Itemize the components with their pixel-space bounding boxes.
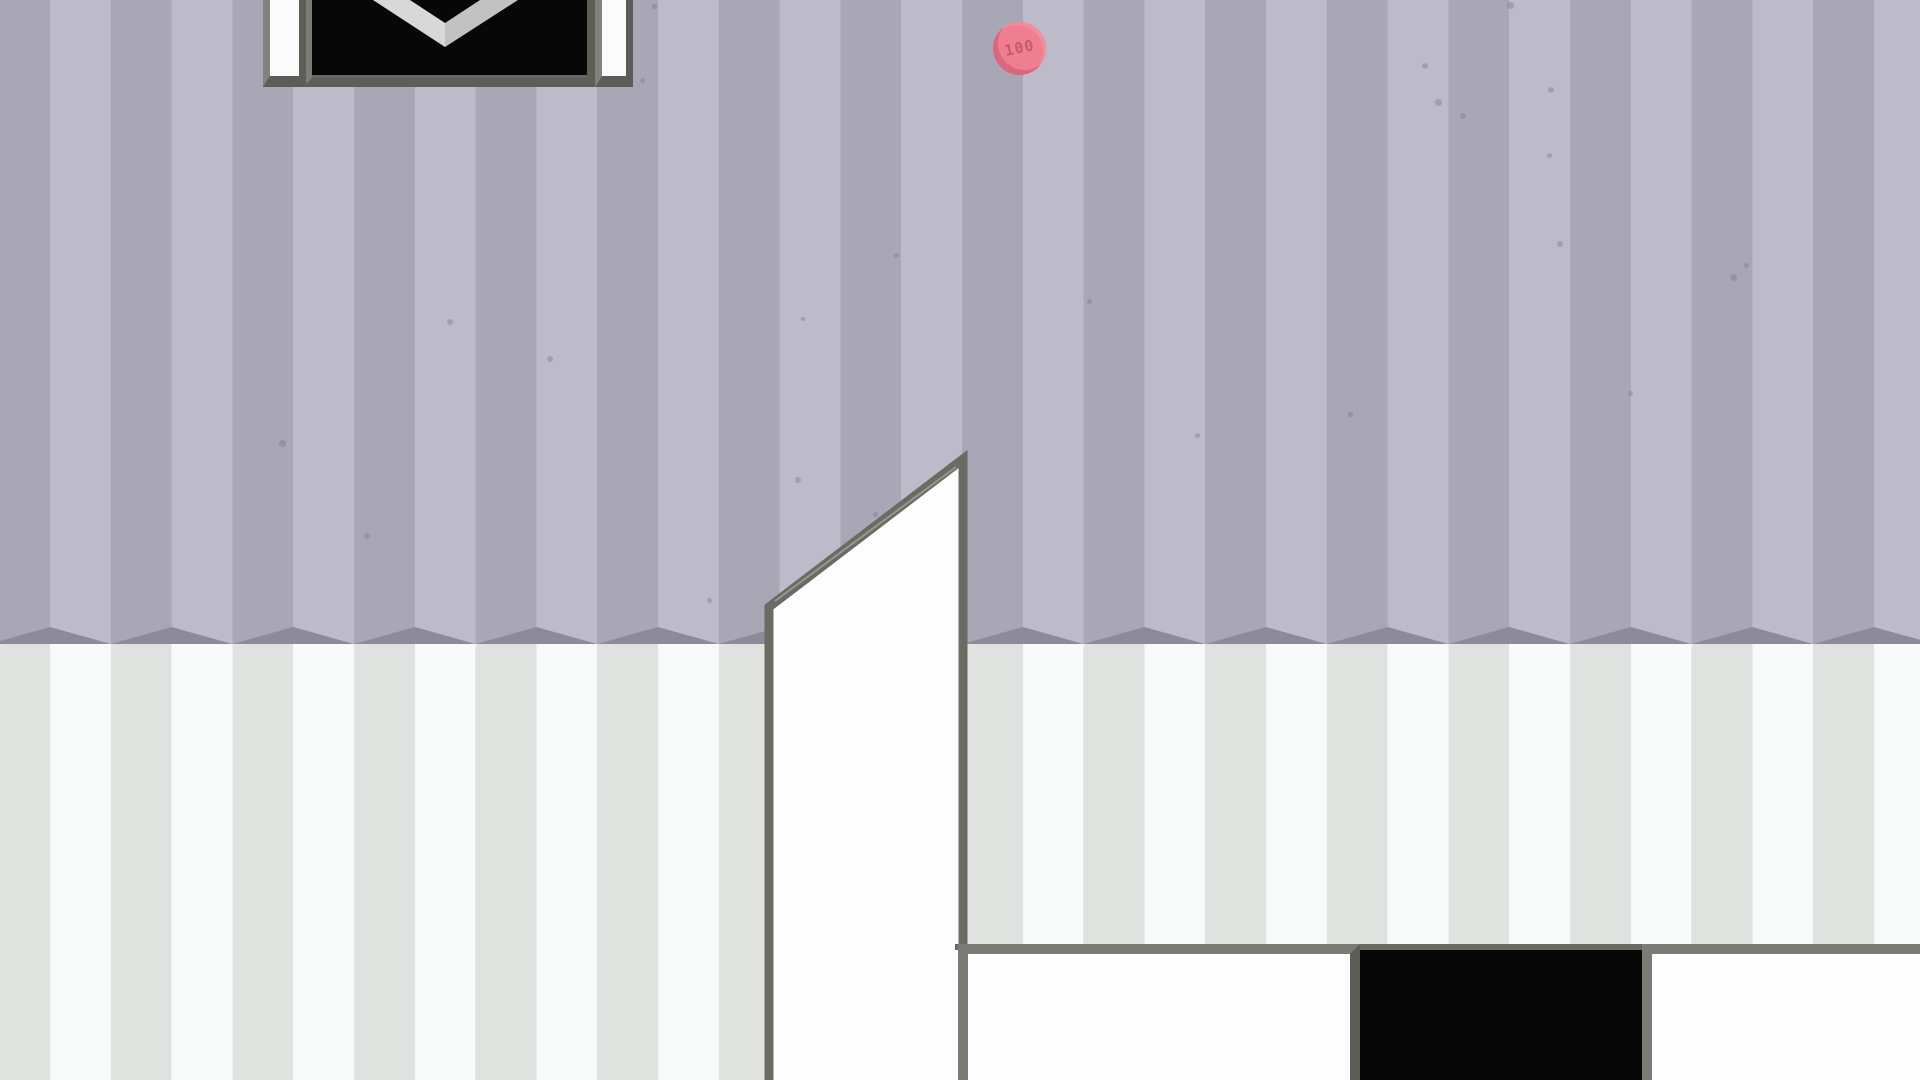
platform-block-right	[1642, 944, 1920, 1080]
dust-speck	[640, 78, 645, 83]
dust-speck	[447, 319, 453, 325]
coin-value: 100	[997, 35, 1043, 62]
dust-speck	[795, 477, 801, 483]
door-pillar-right	[595, 0, 633, 87]
dust-speck	[1435, 99, 1442, 106]
dust-speck	[1460, 113, 1466, 119]
chevron-down-icon	[312, 0, 587, 78]
dust-speck	[279, 440, 286, 447]
dust-speck	[1422, 63, 1428, 69]
game-scene[interactable]: 100	[0, 0, 1920, 1080]
dust-speck	[1548, 87, 1554, 93]
door-pillar-left	[263, 0, 306, 87]
dust-speck	[1628, 391, 1633, 396]
dust-speck	[873, 512, 878, 517]
platform-opening	[1360, 950, 1642, 1080]
dust-speck	[1557, 241, 1563, 247]
dust-speck	[894, 253, 899, 258]
dust-speck	[547, 356, 553, 362]
dust-speck	[1507, 2, 1514, 9]
dust-speck	[801, 317, 805, 321]
dust-speck	[707, 598, 712, 603]
platform-block-left	[958, 944, 1360, 1080]
upper-wall	[0, 0, 1920, 644]
dust-speck	[1348, 412, 1353, 417]
coin-pickup: 100	[993, 22, 1046, 75]
exit-doorway	[303, 0, 596, 87]
dust-speck	[652, 4, 657, 9]
dust-speck	[1195, 433, 1200, 438]
dust-speck	[364, 533, 370, 539]
dust-speck	[1730, 274, 1737, 281]
dust-speck	[1547, 153, 1552, 158]
dust-speck	[1744, 263, 1749, 268]
dust-speck	[1087, 299, 1092, 304]
wall-fold-zigzag	[0, 627, 1920, 644]
